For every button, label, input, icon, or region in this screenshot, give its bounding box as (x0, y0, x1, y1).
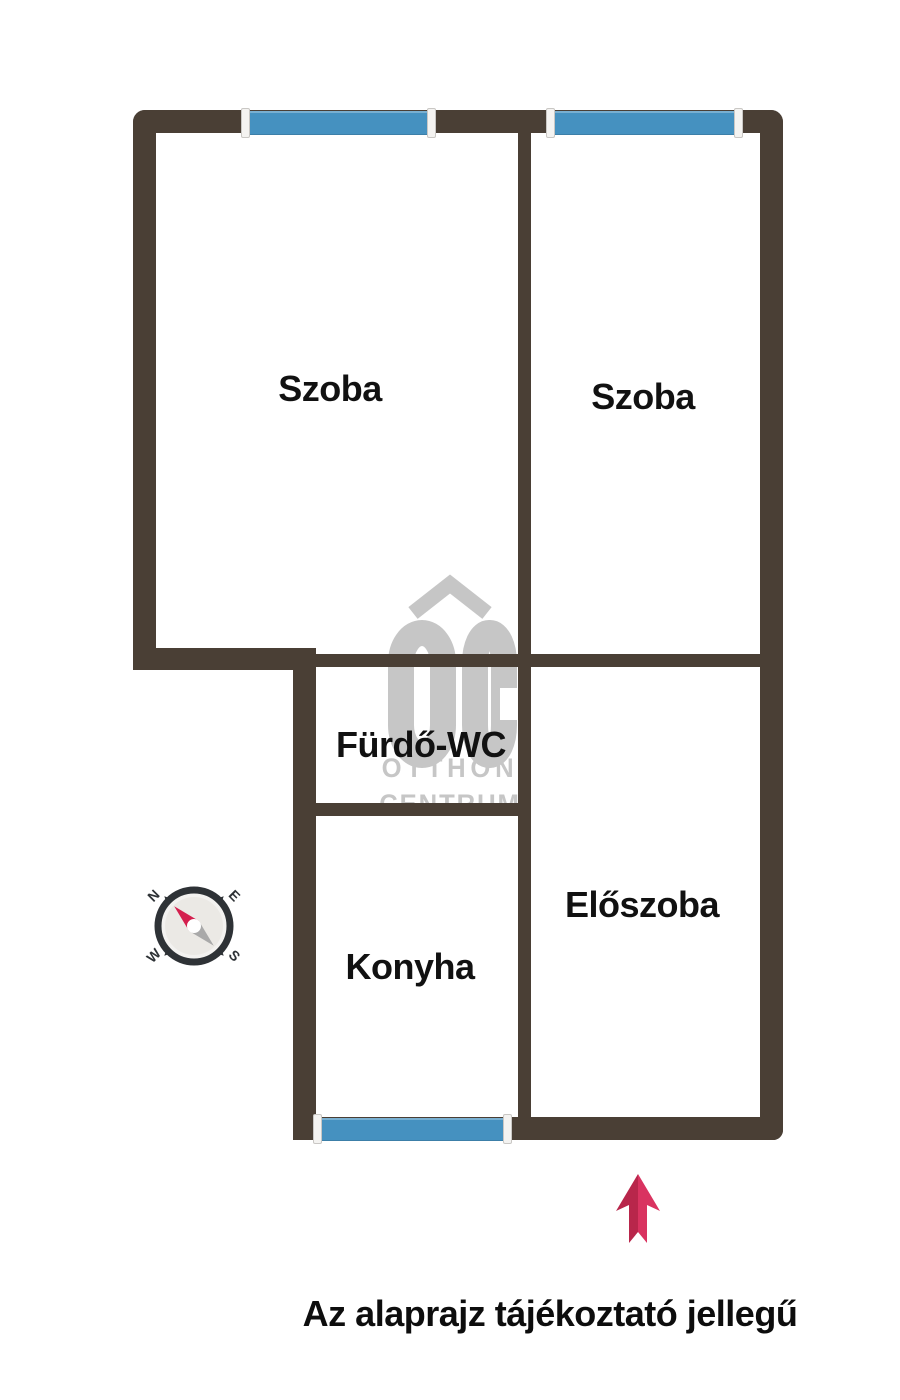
window-jamb (546, 108, 555, 138)
floorplan: OTTHON CENTRUM Szoba Szoba Fürdő-WC Kony… (0, 0, 900, 1400)
room-label-szoba-left: Szoba (220, 368, 440, 410)
wall-right (760, 110, 783, 1140)
window-jamb (241, 108, 250, 138)
window-top-right (552, 111, 738, 135)
wall-mid-horizontal (316, 654, 760, 667)
window-jamb (427, 108, 436, 138)
wall-szoba1-bottom (133, 648, 316, 670)
compass-icon: N E W S (144, 876, 244, 976)
room-label-konyha: Konyha (300, 946, 520, 988)
wall-left (133, 110, 156, 670)
room-label-szoba-right: Szoba (533, 376, 753, 418)
window-jamb (734, 108, 743, 138)
wall-kitchen-left (293, 648, 316, 1140)
disclaimer-text: Az alaprajz tájékoztató jellegű (250, 1293, 850, 1335)
compass-label-n: N (144, 886, 162, 904)
room-label-furdo-wc: Fürdő-WC (311, 724, 531, 766)
wall-bathroom-bottom (293, 803, 518, 816)
compass-label-s: S (226, 947, 244, 965)
window-top-left (248, 111, 430, 135)
window-jamb (503, 1114, 512, 1144)
logo-chevron-icon (413, 584, 487, 613)
window-bottom (320, 1118, 506, 1141)
compass-label-e: E (226, 887, 244, 905)
north-arrow-icon (614, 1174, 662, 1244)
window-jamb (313, 1114, 322, 1144)
room-label-eloszoba: Előszoba (532, 884, 752, 926)
